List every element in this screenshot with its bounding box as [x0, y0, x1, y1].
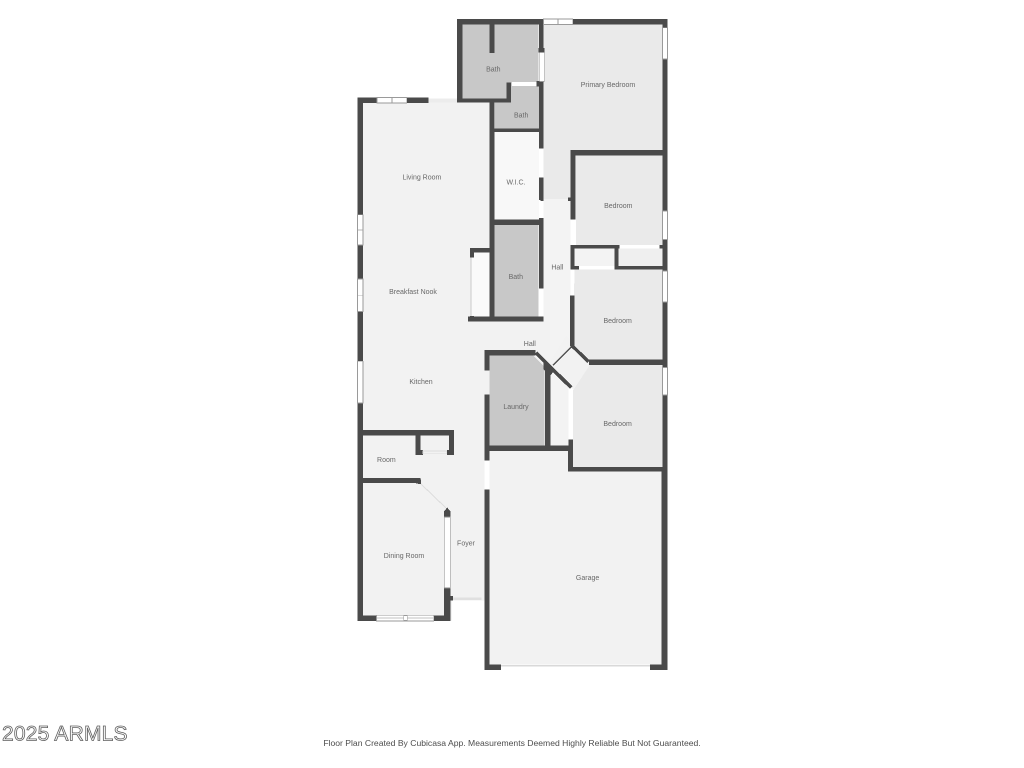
svg-text:Bath: Bath — [509, 274, 524, 281]
svg-text:Foyer: Foyer — [457, 541, 476, 548]
svg-text:Laundry: Laundry — [503, 404, 529, 411]
svg-text:Bedroom: Bedroom — [603, 318, 632, 325]
svg-text:Garage: Garage — [576, 575, 599, 582]
svg-text:Living Room: Living Room — [402, 175, 441, 182]
svg-text:Bath: Bath — [486, 67, 501, 74]
svg-text:Hall: Hall — [524, 341, 537, 348]
svg-text:Primary Bedroom: Primary Bedroom — [581, 82, 636, 89]
svg-text:Bedroom: Bedroom — [604, 203, 633, 210]
svg-text:Room: Room — [377, 457, 396, 464]
svg-text:Hall: Hall — [551, 265, 564, 272]
svg-text:Dining Room: Dining Room — [384, 553, 425, 560]
svg-text:W.I.C.: W.I.C. — [506, 180, 525, 187]
svg-text:2025 ARMLS: 2025 ARMLS — [2, 722, 128, 745]
svg-text:Bedroom: Bedroom — [603, 421, 632, 428]
svg-text:Breakfast Nook: Breakfast Nook — [389, 289, 437, 296]
svg-text:Bath: Bath — [514, 113, 529, 120]
svg-text:Kitchen: Kitchen — [409, 379, 432, 386]
svg-text:Floor Plan Created By Cubicasa: Floor Plan Created By Cubicasa App. Meas… — [323, 738, 700, 748]
